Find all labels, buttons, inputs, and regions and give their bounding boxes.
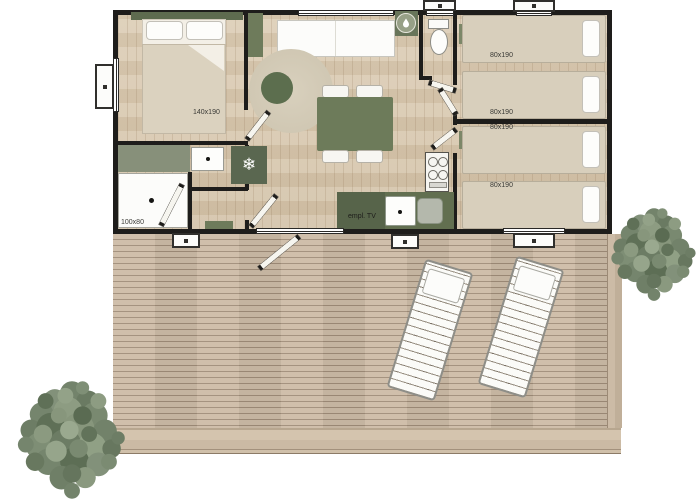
window-living-top <box>298 10 394 16</box>
window-box <box>513 233 555 248</box>
window-living-bottom <box>256 228 344 234</box>
sink-drain <box>398 210 402 214</box>
snowflake-icon: ❄ <box>242 155 256 175</box>
window-box <box>391 234 419 249</box>
wall-wc-left <box>419 15 423 78</box>
tree <box>6 372 138 500</box>
master-bed-label: 140x190 <box>193 109 220 116</box>
single-bed-label: 80x190 <box>490 109 513 116</box>
window-box <box>95 64 114 109</box>
bed-pillow <box>582 186 600 223</box>
low-cabinet <box>205 221 233 229</box>
burner <box>428 170 438 180</box>
dining-table <box>317 97 393 151</box>
stove-controls <box>429 182 447 188</box>
water-drop-icon <box>396 13 416 33</box>
wall-hallway-1 <box>453 15 457 85</box>
lounger-cushion <box>421 268 465 304</box>
tv-cabinet <box>337 192 385 229</box>
shower-drain <box>149 198 154 203</box>
burner <box>438 157 448 167</box>
window-box <box>513 0 555 12</box>
coffee-table <box>261 72 293 104</box>
lounger-cushion <box>512 265 556 301</box>
bed-pillow <box>146 21 183 40</box>
bed-pillow <box>582 76 600 113</box>
sofa-cushion-line <box>335 21 336 56</box>
bed-pillow <box>582 131 600 168</box>
stove <box>425 152 449 192</box>
sink-drainer <box>417 198 443 224</box>
fridge: ❄ <box>231 146 267 184</box>
floor-plan: 140x190 100x80 ❄ empl. TV 80x190 <box>0 0 700 500</box>
toilet-tank <box>428 19 449 29</box>
dining-chair <box>322 150 349 163</box>
bed-pillow <box>186 21 223 40</box>
wall-shower <box>188 172 192 229</box>
tv-label: empl. TV <box>348 213 376 220</box>
wall-bedroom-divider <box>456 119 607 124</box>
shower-label: 100x80 <box>121 219 144 226</box>
tree <box>602 200 700 306</box>
window-box <box>423 0 456 11</box>
bed-pillow <box>582 20 600 57</box>
blanket-fold <box>188 45 224 71</box>
sink-drain <box>206 157 210 161</box>
single-bed-label: 80x190 <box>490 124 513 131</box>
burner <box>438 170 448 180</box>
window-box <box>172 233 200 248</box>
dining-chair <box>356 150 383 163</box>
single-bed-label: 80x190 <box>490 182 513 189</box>
living-cabinet <box>248 13 263 57</box>
deck-fascia-bottom <box>106 428 621 454</box>
single-bed-label: 80x190 <box>490 52 513 59</box>
wall-bath-corridor <box>188 187 248 191</box>
toilet <box>430 29 448 55</box>
bathroom-counter <box>118 145 190 172</box>
burner <box>428 157 438 167</box>
